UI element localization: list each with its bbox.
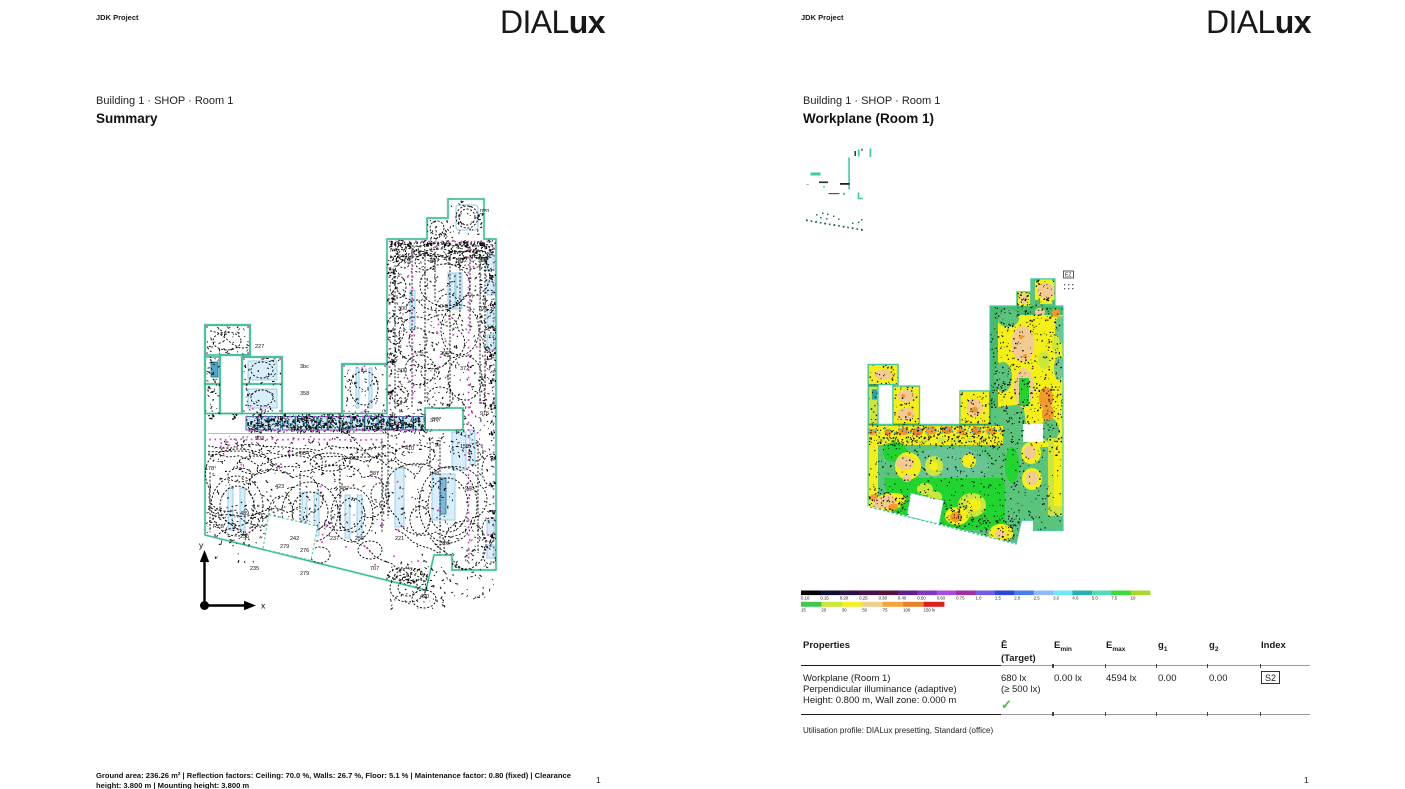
svg-text:178: 178 <box>205 466 214 472</box>
svg-text:377: 377 <box>430 418 439 424</box>
svg-text:235: 235 <box>250 566 259 572</box>
svg-text:3bc: 3bc <box>300 364 309 370</box>
svg-text:276: 276 <box>300 548 309 554</box>
svg-text:410: 410 <box>405 446 414 452</box>
svg-text:487: 487 <box>340 486 349 492</box>
svg-text:489: 489 <box>240 511 249 517</box>
svg-text:503: 503 <box>255 436 264 442</box>
svg-text:y: y <box>199 540 204 550</box>
svg-text:707: 707 <box>370 566 379 572</box>
svg-text:221: 221 <box>395 536 404 542</box>
svg-text:387: 387 <box>370 471 379 477</box>
svg-text:362: 362 <box>350 456 359 462</box>
svg-text:B: B <box>390 414 394 420</box>
svg-text:279: 279 <box>280 544 289 550</box>
svg-text:279: 279 <box>300 571 309 577</box>
svg-text:242: 242 <box>290 536 299 542</box>
svg-text:915: 915 <box>480 411 489 417</box>
svg-text:1422: 1422 <box>455 258 467 264</box>
svg-text:320: 320 <box>440 541 449 547</box>
svg-text:948: 948 <box>465 486 474 492</box>
svg-text:x: x <box>261 601 266 611</box>
svg-text:984: 984 <box>478 258 487 264</box>
svg-text:584: 584 <box>300 451 309 457</box>
svg-text:372: 372 <box>460 366 469 372</box>
svg-text:b48: b48 <box>430 471 439 477</box>
svg-text:300: 300 <box>398 306 407 312</box>
svg-text:155: 155 <box>460 444 469 450</box>
svg-text:0-0: 0-0 <box>440 304 448 310</box>
svg-text:540: 540 <box>398 254 407 260</box>
svg-text:n=n: n=n <box>480 208 489 214</box>
svg-text:250: 250 <box>355 536 364 542</box>
svg-text:235: 235 <box>240 534 249 540</box>
svg-text:487: 487 <box>430 258 439 264</box>
svg-text:RZB: RZB <box>213 524 224 530</box>
svg-text:700: 700 <box>478 306 487 312</box>
svg-text:423: 423 <box>275 484 284 490</box>
svg-text:295: 295 <box>440 351 449 357</box>
svg-text:358: 358 <box>300 391 309 397</box>
svg-text:500: 500 <box>398 368 407 374</box>
svg-text:237: 237 <box>330 536 339 542</box>
svg-text:227: 227 <box>255 344 264 350</box>
